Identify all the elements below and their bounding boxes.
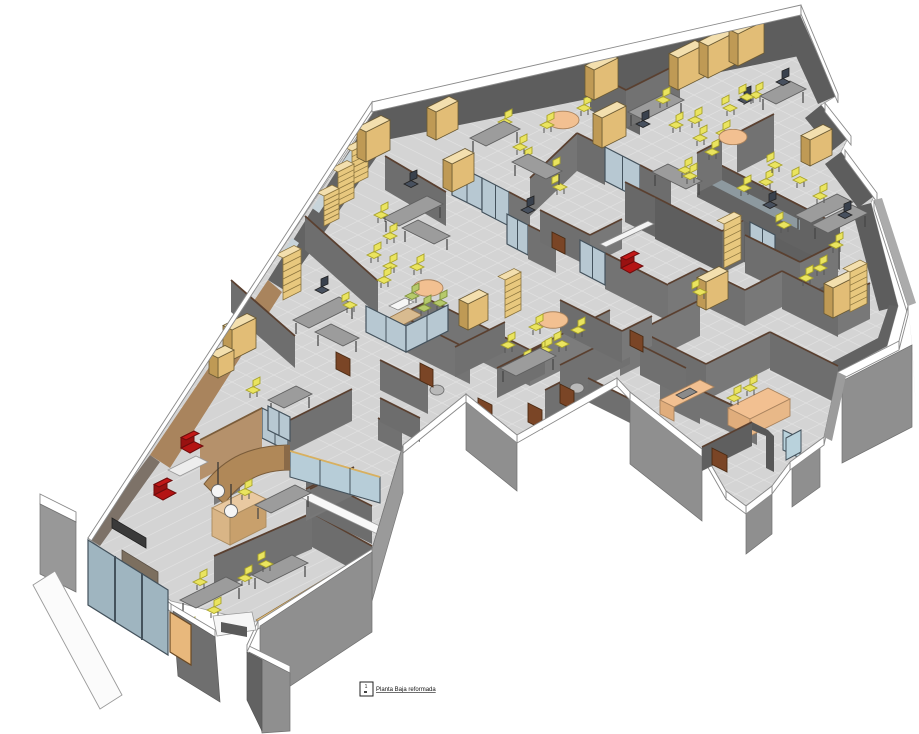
svg-text:Planta Baja reformada: Planta Baja reformada	[376, 687, 436, 693]
svg-text:1: 1	[365, 684, 368, 690]
